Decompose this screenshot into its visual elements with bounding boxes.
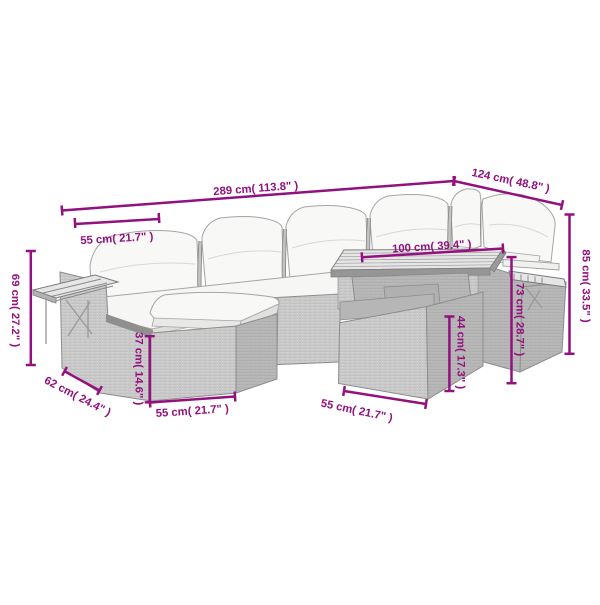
svg-text:85 cm( 33.5" ): 85 cm( 33.5" ): [580, 249, 592, 322]
svg-text:69 cm( 27.2" ): 69 cm( 27.2" ): [9, 274, 21, 347]
svg-text:73 cm( 28.7" ): 73 cm( 28.7" ): [514, 283, 526, 356]
svg-text:44 cm( 17.3" ): 44 cm( 17.3" ): [455, 316, 467, 389]
svg-text:37 cm( 14.6" ): 37 cm( 14.6" ): [133, 332, 145, 405]
